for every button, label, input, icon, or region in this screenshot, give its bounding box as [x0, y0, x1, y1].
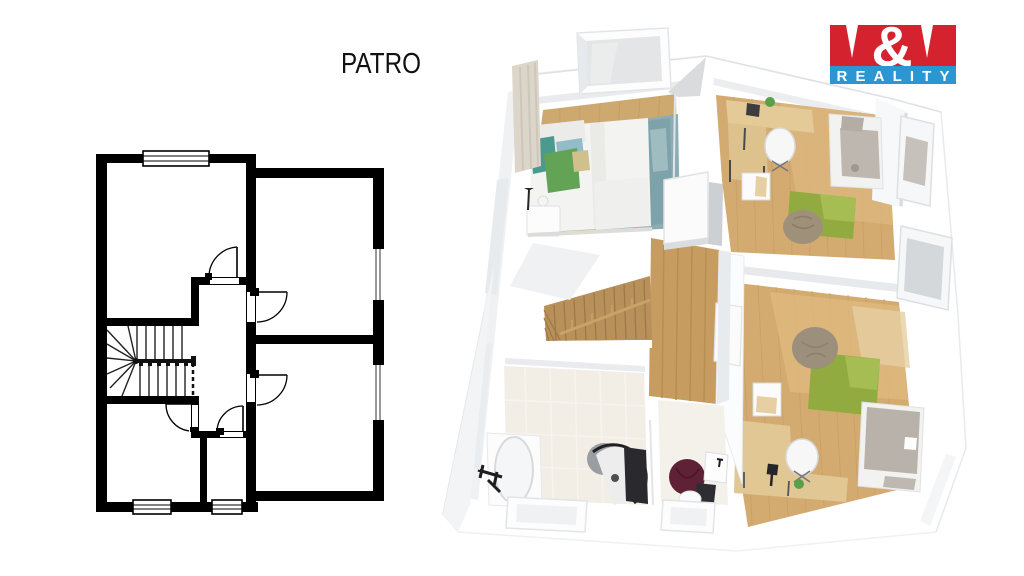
- svg-text:PATRO: PATRO: [341, 48, 421, 80]
